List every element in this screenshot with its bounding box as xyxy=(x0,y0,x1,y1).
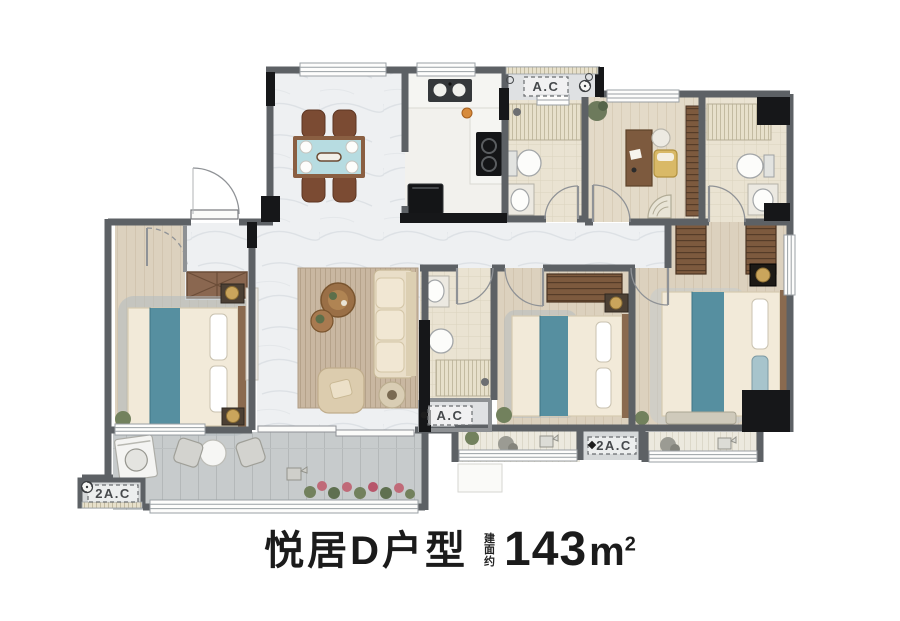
patio-table xyxy=(200,440,226,466)
window xyxy=(649,451,757,462)
toilet xyxy=(517,150,541,176)
lamp xyxy=(756,268,770,282)
lamp xyxy=(226,287,239,300)
floor-balcony xyxy=(113,432,425,510)
area-prefix: 建面约 xyxy=(484,534,498,570)
window xyxy=(150,500,418,513)
ac-label-text: 2A.C xyxy=(596,438,632,453)
window xyxy=(115,424,205,435)
lamp xyxy=(610,297,622,309)
floorplan-page: A.C A.C 2A.C 2A.C 悦居D户型建面约143m2 xyxy=(0,0,900,621)
ac-label-text: 2A.C xyxy=(95,486,131,501)
area-unit: m2 xyxy=(589,533,636,571)
toilet xyxy=(429,329,453,353)
lamp xyxy=(227,410,240,423)
walkin-wardrobe xyxy=(676,224,706,274)
toilet xyxy=(737,154,763,178)
ac-label-text: A.C xyxy=(533,79,560,94)
master-bedroom-furniture xyxy=(115,272,250,436)
ac-platform-bottom-middle-label: 2A.C xyxy=(588,437,636,454)
plan-title: 悦居D户型 xyxy=(264,531,468,571)
window xyxy=(417,63,475,76)
window xyxy=(459,450,577,461)
window xyxy=(607,90,679,102)
bookshelf xyxy=(686,106,700,216)
desk-chair xyxy=(652,129,670,147)
outdoor-unit-step xyxy=(458,464,502,492)
window xyxy=(300,63,386,76)
shower-area xyxy=(436,360,492,396)
ac-platform-middle-label: A.C xyxy=(421,406,473,425)
entry-door xyxy=(191,168,239,219)
window xyxy=(784,235,795,295)
foot-bench xyxy=(666,412,736,424)
area-value: 143 xyxy=(504,528,587,571)
area-unit-sup: 2 xyxy=(625,534,636,556)
ac-label-text: A.C xyxy=(437,408,464,423)
louver-strip xyxy=(506,67,598,74)
caption: 悦居D户型建面约143m2 xyxy=(0,528,900,571)
louver-strip xyxy=(82,502,142,508)
